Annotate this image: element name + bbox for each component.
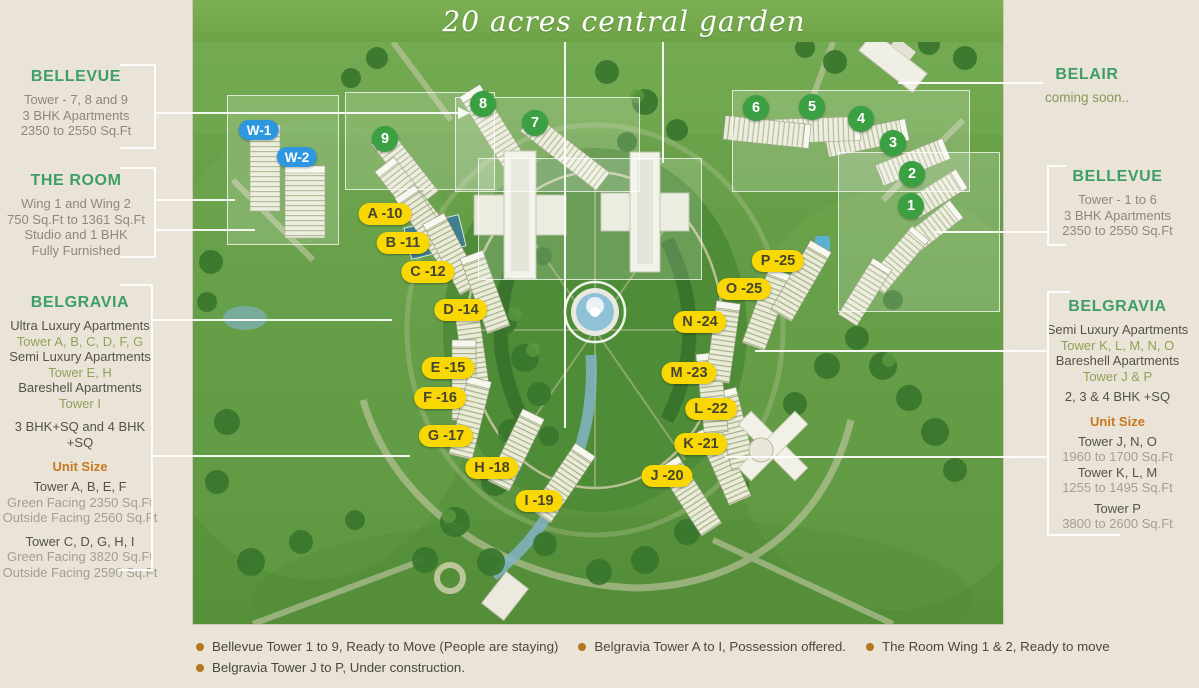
text-line: 750 Sq.Ft to 1361 Sq.Ft [0,212,152,228]
right-belgravia-section: BELGRAVIA Semi Luxury ApartmentsTower K,… [1040,298,1195,532]
tower-badge-k-21[interactable]: K -21 [674,433,727,455]
unit-size-label: Unit Size [1040,414,1195,429]
section-heading: THE ROOM [0,172,152,190]
section-heading: BELLEVUE [0,68,152,86]
tower-badge-e-15[interactable]: E -15 [422,357,475,379]
tower-badge-3[interactable]: 3 [880,130,906,156]
text-line: Semi Luxury Apartments [1040,322,1195,338]
coming-soon-text: coming soon.. [1012,90,1162,105]
text-line: Tower C, D, G, H, I [0,534,160,550]
text-line: Tower - 7, 8 and 9 [0,92,152,108]
bullet-icon [196,643,204,651]
text-line: 2350 to 2550 Sq.Ft [1040,223,1195,239]
right-belair-section: BELAIR coming soon.. [1012,66,1162,105]
tower-badge-h-18[interactable]: H -18 [465,457,518,479]
text-line: 2, 3 & 4 BHK +SQ [1040,389,1195,405]
banner: 20 acres central garden [193,0,1003,42]
text-line: Tower J, N, O [1040,434,1195,450]
text-line: Tower J & P [1040,369,1195,385]
text-line: Tower A, B, E, F [0,479,160,495]
bullet-icon [866,643,874,651]
text-line: 3 BHK+SQ and 4 BHK +SQ [0,419,160,450]
tower-badge-p-25[interactable]: P -25 [752,250,804,272]
left-the-room-section: THE ROOM Wing 1 and Wing 2750 Sq.Ft to 1… [0,172,152,258]
tower-badge-n-24[interactable]: N -24 [673,311,726,333]
tower-badge-w-2[interactable]: W-2 [277,147,317,167]
tower-badge-m-23[interactable]: M -23 [661,362,716,384]
tower-badge-l-22[interactable]: L -22 [685,398,737,420]
tower-badge-f-16[interactable]: F -16 [414,387,466,409]
text-line: Green Facing 2350 Sq.Ft [0,495,160,511]
legend-text: Bellevue Tower 1 to 9, Ready to Move (Pe… [212,637,558,657]
legend-item: Bellevue Tower 1 to 9, Ready to Move (Pe… [196,637,558,657]
legend-row: Bellevue Tower 1 to 9, Ready to Move (Pe… [196,637,1196,657]
site-plan-page: 20 acres central garden W-1W-2987654321A… [0,0,1199,688]
section-heading: BELGRAVIA [1040,298,1195,316]
section-heading: BELGRAVIA [0,294,160,312]
section-heading: BELLEVUE [1040,168,1195,186]
text-line: 1960 to 1700 Sq.Ft [1040,449,1195,465]
text-line: Tower K, L, M, N, O [1040,338,1195,354]
text-line: Outside Facing 2590 Sq.Ft [0,565,160,581]
tower-badge-2[interactable]: 2 [899,161,925,187]
tower-badge-1[interactable]: 1 [898,193,924,219]
tower-badge-7[interactable]: 7 [522,110,548,136]
left-bellevue-section: BELLEVUE Tower - 7, 8 and 93 BHK Apartme… [0,68,152,139]
text-line: Tower E, H [0,365,160,381]
legend-text: The Room Wing 1 & 2, Ready to move [882,637,1110,657]
text-line: 3800 to 2600 Sq.Ft [1040,516,1195,532]
text-line: Studio and 1 BHK [0,227,152,243]
legend-item: The Room Wing 1 & 2, Ready to move [866,637,1110,657]
left-belgravia-section: BELGRAVIA Ultra Luxury ApartmentsTower A… [0,294,160,580]
legend-item: Belgravia Tower J to P, Under constructi… [196,658,465,678]
text-line: Wing 1 and Wing 2 [0,196,152,212]
tower-badge-i-19[interactable]: I -19 [515,490,562,512]
text-line: Tower K, L, M [1040,465,1195,481]
tower-badge-b-11[interactable]: B -11 [377,232,430,254]
text-line: Tower - 1 to 6 [1040,192,1195,208]
tower-badge-4[interactable]: 4 [848,106,874,132]
text-line: 1255 to 1495 Sq.Ft [1040,480,1195,496]
tower-badge-9[interactable]: 9 [372,126,398,152]
bullet-icon [578,643,586,651]
banner-title: 20 acres central garden [390,5,805,38]
unit-size-label: Unit Size [0,459,160,474]
status-legend: Bellevue Tower 1 to 9, Ready to Move (Pe… [196,637,1196,679]
tower-badge-8[interactable]: 8 [470,91,496,117]
text-line: Bareshell Apartments [1040,353,1195,369]
tower-badge-o-25[interactable]: O -25 [717,278,771,300]
right-bellevue-section: BELLEVUE Tower - 1 to 63 BHK Apartments2… [1040,168,1195,239]
section-heading: BELAIR [1012,66,1162,84]
legend-item: Belgravia Tower A to I, Possession offer… [578,637,846,657]
text-line: 3 BHK Apartments [0,108,152,124]
text-line: Bareshell Apartments [0,380,160,396]
text-line: Tower P [1040,501,1195,517]
bullet-icon [196,664,204,672]
text-line: Tower I [0,396,160,412]
tower-badge-d-14[interactable]: D -14 [434,299,487,321]
text-line: Ultra Luxury Apartments [0,318,160,334]
legend-text: Belgravia Tower A to I, Possession offer… [594,637,846,657]
legend-text: Belgravia Tower J to P, Under constructi… [212,658,465,678]
tower-badge-a-10[interactable]: A -10 [359,203,412,225]
legend-row: Belgravia Tower J to P, Under constructi… [196,658,1196,678]
text-line: Tower A, B, C, D, F, G [0,334,160,350]
site-map: 20 acres central garden W-1W-2987654321A… [193,0,1003,624]
tower-badge-g-17[interactable]: G -17 [419,425,473,447]
text-line: Fully Furnished [0,243,152,259]
text-line: Semi Luxury Apartments [0,349,160,365]
text-line: Outside Facing 2560 Sq.Ft [0,510,160,526]
text-line: 2350 to 2550 Sq.Ft [0,123,152,139]
text-line: 3 BHK Apartments [1040,208,1195,224]
tower-badge-w-1[interactable]: W-1 [239,120,279,140]
highlight-box [478,158,702,280]
tower-badge-c-12[interactable]: C -12 [401,261,454,283]
tower-badge-5[interactable]: 5 [799,94,825,120]
tower-badge-6[interactable]: 6 [743,95,769,121]
highlight-box [227,95,339,245]
tower-badge-j-20[interactable]: J -20 [641,465,692,487]
text-line: Green Facing 3820 Sq.Ft [0,549,160,565]
